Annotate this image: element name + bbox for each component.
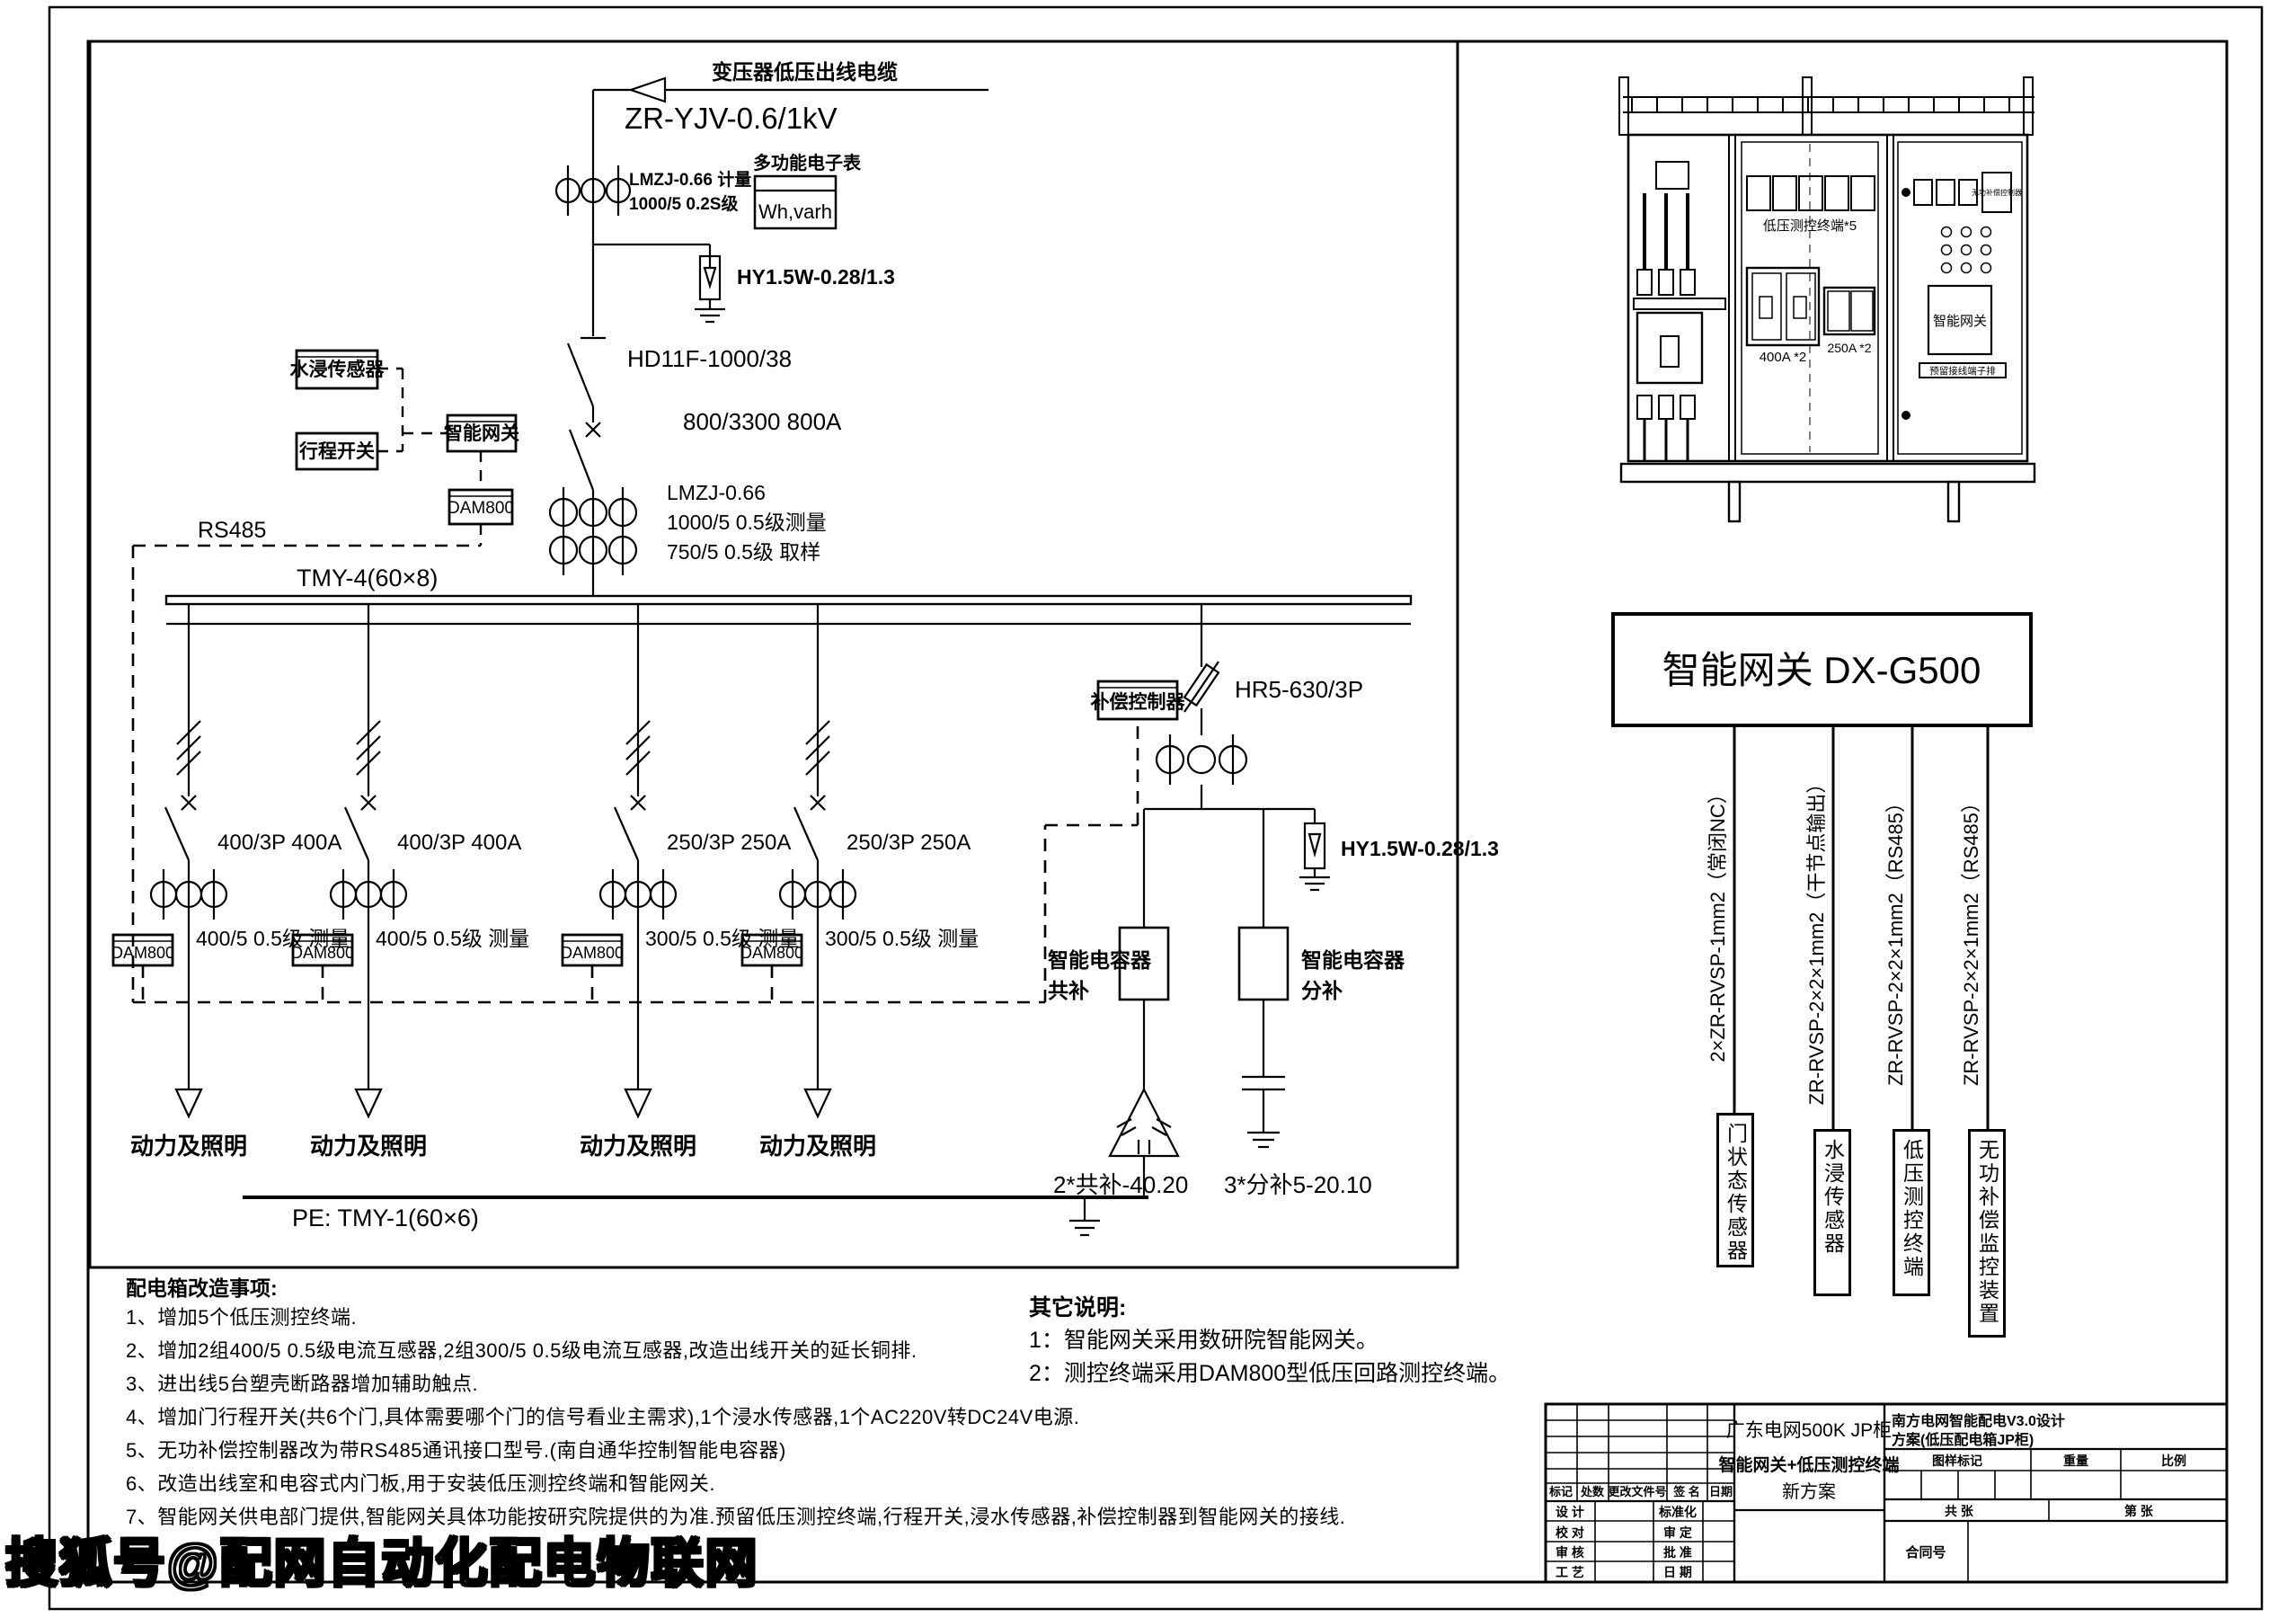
tb-col-mark: 标记 <box>1548 1485 1573 1498</box>
busbar-label: TMY-4(60×8) <box>297 565 438 591</box>
incoming-cable-model: ZR-YJV-0.6/1kV <box>625 102 838 135</box>
ct2-label-1: LMZJ-0.66 <box>667 481 766 504</box>
feeder2-breaker-label: 400/3P 400A <box>397 831 521 855</box>
device-lv-terminal: 低压测控终端 <box>1893 1129 1930 1296</box>
rs485-label: RS485 <box>198 518 266 543</box>
ct1-label-1: LMZJ-0.66 计量 <box>629 170 751 190</box>
cap-split-label-2: 分补 <box>1301 979 1343 1002</box>
tb-col-count: 处数 <box>1580 1485 1605 1498</box>
feeder2-ct-label: 400/5 0.5级 测量 <box>376 927 529 950</box>
cap-split-label-1: 智能电容器 <box>1301 948 1405 972</box>
disconnector-label: HD11F-1000/38 <box>627 345 792 372</box>
tb-col-date: 日期 <box>1709 1485 1733 1498</box>
tb-product2: 智能网关+低压测控终端 <box>1718 1454 1899 1475</box>
main-busbar: TMY-4(60×8) <box>166 565 1411 624</box>
compensation-labels: 补偿控制器 HR5-630/3P HY1.5W-0.28/1.3 智能电容器 共… <box>1048 676 1499 1198</box>
ct2-label-2: 1000/5 0.5级测量 <box>667 511 827 534</box>
cabinet-gateway-label: 智能网关 <box>1933 313 1987 329</box>
tb-sheets-total: 共 张 <box>1945 1504 1974 1518</box>
cabinet-breaker250-label: 250A *2 <box>1827 341 1871 355</box>
note-item: 6、改造出线室和电容式内门板,用于安装低压测控终端和智能网关. <box>126 1474 1474 1494</box>
tb-project1: 南方电网智能配电V3.0设计 <box>1892 1412 2065 1429</box>
tb-row-design: 设 计 <box>1556 1505 1584 1519</box>
comp-arrester-label: HY1.5W-0.28/1.3 <box>1341 837 1499 860</box>
tb-product1: 广东电网500K JP柜 <box>1726 1420 1892 1441</box>
tb-product3: 新方案 <box>1782 1481 1836 1502</box>
feeder1-terminal-label: DAM800 <box>111 944 174 962</box>
tb-col-doc: 更改文件号 <box>1608 1485 1666 1498</box>
pe-busbar-label: PE: TMY-1(60×6) <box>292 1205 479 1231</box>
comp-fuse-label: HR5-630/3P <box>1235 676 1363 703</box>
tb-row-audit: 审 核 <box>1556 1545 1584 1560</box>
ct1-label-2: 1000/5 0.2S级 <box>629 193 738 214</box>
cabinet-lv-terminal-label: 低压测控终端*5 <box>1763 218 1857 234</box>
other-note-item: 2：测控终端采用DAM800型低压回路测控终端。 <box>1029 1357 1532 1390</box>
feeder2-load-label: 动力及照明 <box>310 1133 427 1160</box>
cable-label-door-nc: 2×ZR-RVSP-1mm2（常闭NC） <box>1702 739 1729 1107</box>
tb-row-review: 审 定 <box>1663 1525 1692 1540</box>
feeder4-terminal-label: DAM800 <box>740 944 803 962</box>
device-water-sensor: 水浸传感器 <box>1813 1129 1851 1296</box>
travel-switch-label: 行程开关 <box>298 440 375 462</box>
feeder4-ct-label: 300/5 0.5级 测量 <box>825 927 979 950</box>
cap-common-value: 2*共补-40.20 <box>1053 1171 1188 1198</box>
cable-label-rs485-1: ZR-RVSP-2×2×1mm2（RS485） <box>1880 755 1907 1124</box>
cabinet-comp-controller-label: 无功补偿控制器 <box>1972 188 2022 197</box>
cap-common-label-2: 共补 <box>1048 979 1089 1002</box>
tb-project2: 方案(低压配电箱JP柜) <box>1892 1431 2034 1448</box>
other-notes: 其它说明: 1：智能网关采用数研院智能网关。 2：测控终端采用DAM800型低压… <box>1029 1292 1532 1390</box>
meter-title: 多功能电子表 <box>753 152 862 173</box>
pe-busbar: PE: TMY-1(60×6) <box>243 1197 1148 1235</box>
tb-row-date: 日 期 <box>1663 1565 1692 1579</box>
tb-row-approve: 批 准 <box>1663 1545 1692 1560</box>
incoming-cable-label: 变压器低压出线电缆 <box>712 60 898 84</box>
feeder-branch-4: 250/3P 250A 300/5 0.5级 测量 DAM800 动力及照明 <box>740 604 979 1160</box>
feeder-branch-1: 400/3P 400A 400/5 0.5级 测量 DAM800 动力及照明 <box>111 604 350 1160</box>
cabinet-elevation <box>1619 77 2034 521</box>
tb-contract: 合同号 <box>1904 1544 1946 1560</box>
feeder3-breaker-label: 250/3P 250A <box>667 831 791 855</box>
feeder3-terminal-label: DAM800 <box>561 944 624 962</box>
drawing-sheet: 变压器低压出线电缆 ZR-YJV-0.6/1kV LMZJ-0.66 计量 10… <box>0 0 2296 1618</box>
title-block-text: 标记 处数 更改文件号 签 名 日期 设 计 校 对 审 核 工 艺 标准化 审… <box>1548 1412 2186 1579</box>
tb-weight-label: 重量 <box>2063 1454 2088 1468</box>
feeder3-load-label: 动力及照明 <box>580 1133 696 1160</box>
feeder-branch-3: 250/3P 250A 300/5 0.5级 测量 DAM800 动力及照明 <box>561 604 799 1160</box>
main-breaker-label: 800/3300 800A <box>683 408 842 435</box>
tb-mark-label: 图样标记 <box>1932 1454 1982 1468</box>
cap-split-value: 3*分补5-20.10 <box>1224 1171 1372 1198</box>
gateway-panel-title: 智能网关 DX-G500 <box>1662 649 1981 691</box>
cabinet-terminal-strip-label: 预留接线端子排 <box>1929 365 1996 377</box>
feeder-branch-2: 400/3P 400A 400/5 0.5级 测量 DAM800 动力及照明 <box>291 604 529 1160</box>
tb-col-sign: 签 名 <box>1672 1485 1700 1498</box>
comp-controller-label: 补偿控制器 <box>1090 691 1186 713</box>
arrester-label: HY1.5W-0.28/1.3 <box>737 265 895 289</box>
ct2-label-3: 750/5 0.5级 取样 <box>667 540 820 564</box>
feeder4-load-label: 动力及照明 <box>759 1133 876 1160</box>
note-item: 4、增加门行程开关(共6个门,具体需要哪个门的信号看业主需求),1个浸水传感器,… <box>126 1408 1474 1427</box>
tb-scale-label: 比例 <box>2161 1454 2186 1468</box>
cap-common-label-1: 智能电容器 <box>1048 948 1152 972</box>
feeder2-terminal-label: DAM800 <box>291 944 354 962</box>
meter-text: Wh,varh <box>758 200 832 223</box>
device-door-sensor: 门状态传感器 <box>1716 1113 1754 1267</box>
dam800-main-label: DAM800 <box>448 499 514 518</box>
cabinet-labels: 低压测控终端*5 400A *2 250A *2 无功补偿控制器 智能网关 预留… <box>1760 188 2022 377</box>
watermark: 搜狐号@配网自动化配电物联网 <box>5 1521 759 1596</box>
feeder1-load-label: 动力及照明 <box>130 1133 247 1160</box>
incoming-labels: 变压器低压出线电缆 ZR-YJV-0.6/1kV LMZJ-0.66 计量 10… <box>625 60 898 564</box>
cable-label-rs485-2: ZR-RVSP-2×2×1mm2（RS485） <box>1955 755 1982 1124</box>
tb-sheet-no: 第 张 <box>2124 1504 2154 1518</box>
other-note-item: 1：智能网关采用数研院智能网关。 <box>1029 1324 1532 1356</box>
cable-label-dry-contact: ZR-RVSP-2×2×1mm2（干节点输出） <box>1801 755 1828 1124</box>
tb-row-std: 标准化 <box>1658 1505 1697 1519</box>
other-notes-title: 其它说明: <box>1029 1292 1532 1324</box>
tb-row-check: 校 对 <box>1556 1525 1584 1540</box>
water-sensor-label: 水浸传感器 <box>290 359 386 380</box>
feeder1-breaker-label: 400/3P 400A <box>217 831 341 855</box>
note-item: 5、无功补偿控制器改为带RS485通讯接口型号.(南自通华控制智能电容器) <box>126 1441 1474 1461</box>
device-reactive-monitor: 无功补偿监控装置 <box>1968 1129 2006 1338</box>
cabinet-breaker400-label: 400A *2 <box>1760 350 1807 365</box>
tb-row-craft: 工 艺 <box>1556 1565 1584 1579</box>
gateway-box-label: 智能网关 <box>444 422 519 444</box>
feeder4-breaker-label: 250/3P 250A <box>847 831 971 855</box>
